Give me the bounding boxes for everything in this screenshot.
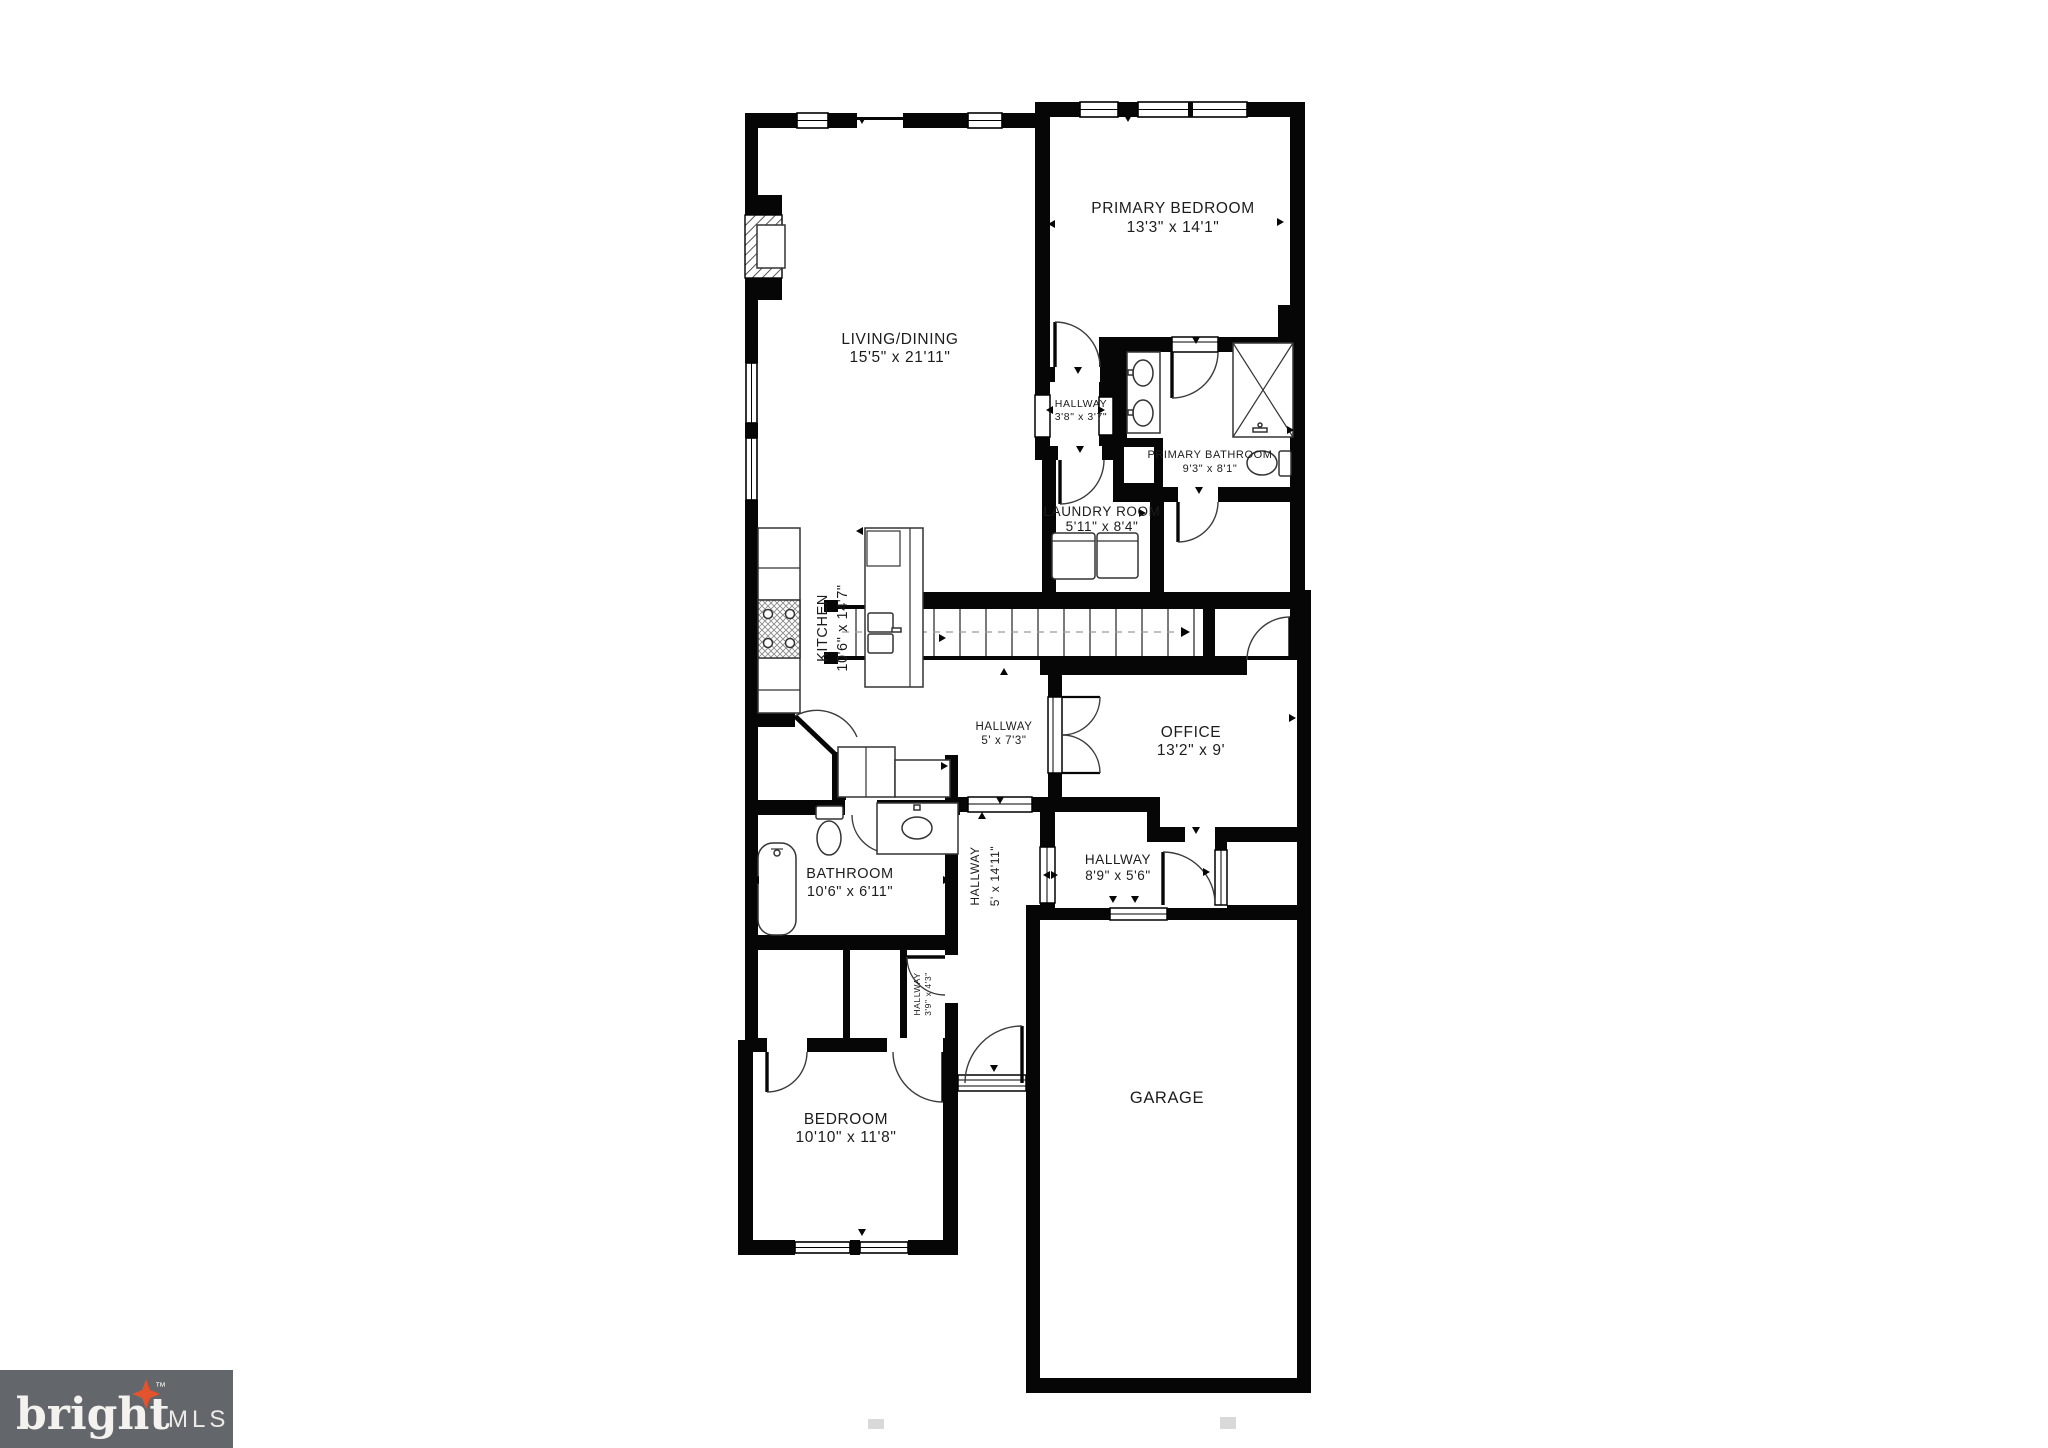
window-symbol: [1080, 102, 1118, 117]
door-opening: [887, 1038, 943, 1052]
scan-artifacts: [868, 1417, 1236, 1429]
logo-mls: MLS: [168, 1406, 229, 1433]
room-label-hallway-center: HALLWAY: [975, 721, 1032, 733]
room-label-laundry-room: LAUNDRY ROOM: [1044, 504, 1161, 519]
door-swing: [1163, 852, 1215, 905]
shower-symbol: [1233, 343, 1293, 437]
room-label-living-dining: LIVING/DINING: [841, 331, 958, 348]
floorplan-image: PRIMARY BEDROOM 13'3" x 14'1" LIVING/DIN…: [0, 0, 2048, 1448]
dimension-ticks: [744, 115, 1296, 1236]
stairs-direction-arrow: [1181, 627, 1190, 637]
kitchen-island: [865, 528, 923, 687]
window-symbol: [797, 113, 828, 128]
door-opening: [767, 1038, 807, 1052]
room-label-hallway-garage: HALLWAY: [1085, 852, 1151, 867]
room-dims-hallway-garage: 8'9" x 5'6": [1085, 868, 1151, 883]
room-label-kitchen: KITCHEN: [815, 594, 831, 662]
window-symbol: [1138, 102, 1247, 117]
room-label-bathroom: BATHROOM: [806, 866, 894, 882]
door-swing: [1178, 502, 1218, 542]
room-label-hallway-small: HALLWAY: [912, 972, 922, 1015]
room-dims-primary-bathroom: 9'3" x 8'1": [1183, 463, 1238, 475]
room-label-hallway-main: HALLWAY: [968, 846, 982, 905]
room-dims-hallway-main: 5' x 14'11": [988, 846, 1002, 907]
room-dims-living-dining: 15'5" x 21'11": [850, 349, 951, 366]
double-vanity-symbol: [1127, 352, 1160, 433]
floorplan-svg: PRIMARY BEDROOM 13'3" x 14'1" LIVING/DIN…: [0, 0, 2048, 1448]
dryer-symbol: [1097, 533, 1138, 578]
room-dims-office: 13'2" x 9': [1157, 742, 1225, 759]
window-symbol: [746, 363, 757, 423]
room-dims-hallway-small: 3'9" x 4'3": [923, 972, 933, 1016]
laundry-fixtures: [1052, 533, 1138, 579]
washer-symbol: [1052, 533, 1095, 579]
door-opening: [1247, 660, 1290, 675]
window-symbol: [746, 438, 757, 500]
room-label-office: OFFICE: [1161, 724, 1221, 741]
door-swing: [767, 1052, 807, 1092]
door-sill: [1110, 908, 1167, 920]
vanity-sink-symbol: [877, 803, 958, 854]
room-dims-laundry-room: 5'11" x 8'4": [1066, 519, 1139, 534]
door-sill: [1215, 850, 1227, 905]
refrigerator-symbol: [838, 747, 895, 797]
door-swing: [1055, 322, 1100, 367]
room-dims-hallway-upper: 3'8" x 3'7": [1055, 411, 1108, 423]
door-swing: [1247, 617, 1290, 660]
door-sill: [1048, 697, 1062, 773]
room-label-primary-bedroom: PRIMARY BEDROOM: [1091, 200, 1254, 217]
stove-symbol: [758, 600, 800, 658]
room-dims-hallway-center: 5' x 7'3": [981, 735, 1026, 747]
front-door-sill: [958, 1075, 1026, 1091]
window-symbol: [860, 1242, 908, 1253]
toilet-symbol: [816, 806, 843, 855]
room-dims-primary-bedroom: 13'3" x 14'1": [1127, 219, 1220, 236]
room-dims-bedroom: 10'10" x 11'8": [796, 1129, 897, 1146]
door-opening: [945, 955, 958, 1003]
room-label-garage: GARAGE: [1130, 1089, 1204, 1107]
door-opening: [845, 800, 877, 815]
door-swing: [1172, 352, 1218, 398]
door-swing: [893, 1052, 943, 1102]
logo-tm: ™: [155, 1381, 166, 1393]
room-label-hallway-upper: HALLWAY: [1055, 398, 1107, 410]
kitchen-fixtures: [758, 528, 950, 797]
door-swing: [1060, 460, 1104, 504]
brightmls-logo: bright ™ MLS: [0, 1370, 233, 1448]
cased-opening: [1035, 395, 1050, 437]
door-opening: [1185, 827, 1215, 842]
room-dims-bathroom: 10'6" x 6'11": [807, 884, 893, 900]
bathtub-symbol: [758, 843, 796, 935]
room-dims-kitchen: 10'6" x 14'7": [835, 584, 851, 671]
window-symbol: [795, 1242, 850, 1253]
double-door-swing: [1062, 697, 1100, 773]
fireplace-symbol: [745, 215, 785, 278]
window-symbol: [968, 113, 1002, 128]
room-label-bedroom: BEDROOM: [804, 1111, 888, 1128]
room-label-primary-bathroom: PRIMARY BATHROOM: [1147, 449, 1272, 461]
